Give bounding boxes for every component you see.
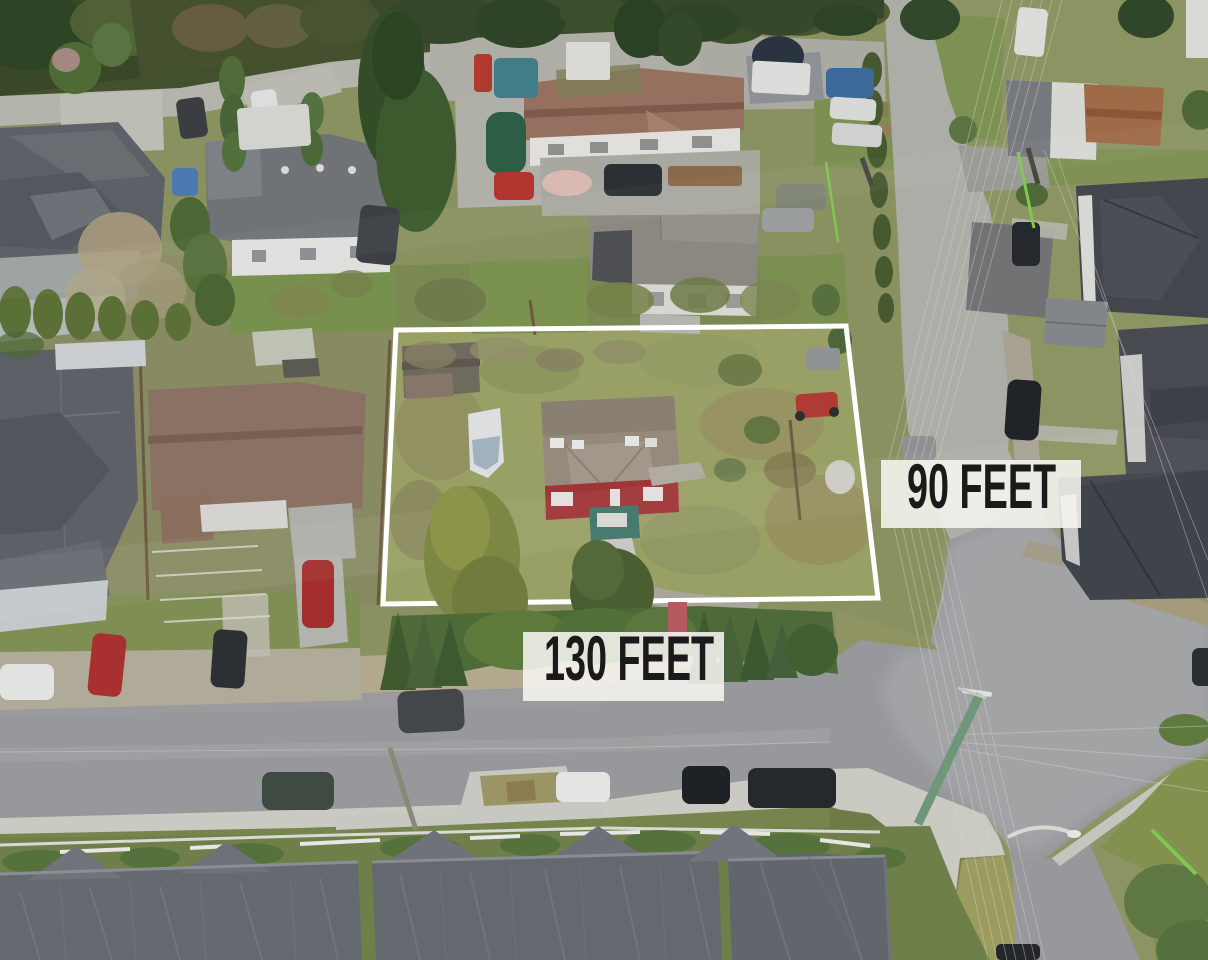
svg-text:130 FEET: 130 FEET [544, 624, 714, 694]
svg-text:90 FEET: 90 FEET [907, 452, 1056, 522]
